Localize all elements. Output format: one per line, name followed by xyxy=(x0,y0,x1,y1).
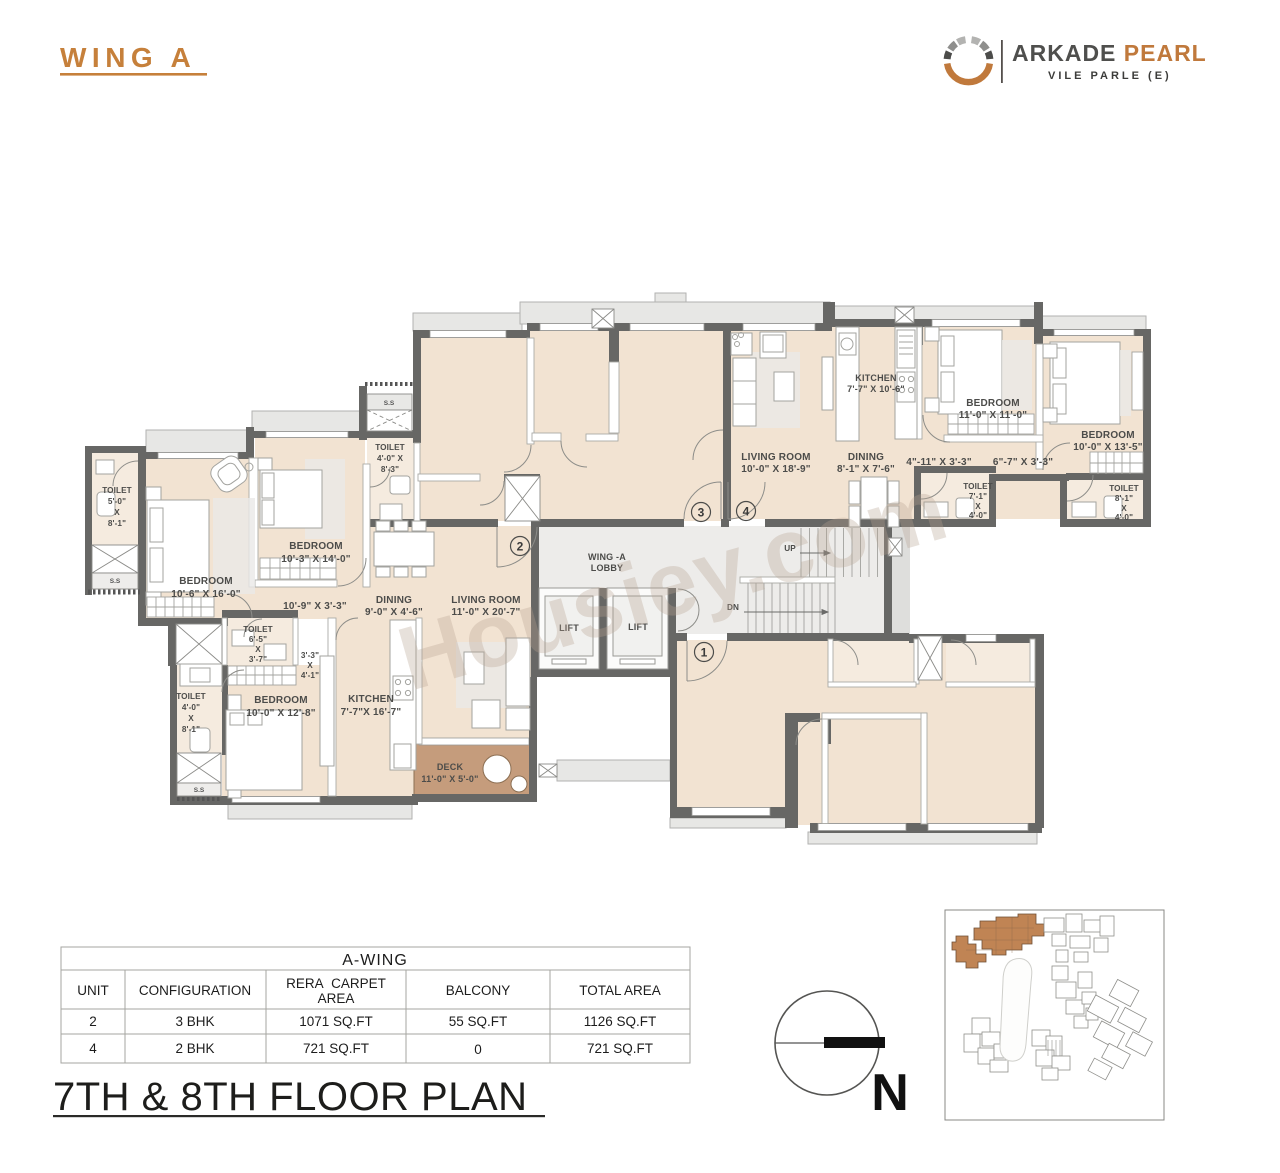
svg-text:BALCONY: BALCONY xyxy=(446,983,511,998)
svg-text:7TH & 8TH FLOOR PLAN: 7TH & 8TH FLOOR PLAN xyxy=(53,1075,528,1119)
svg-text:1071 SQ.FT: 1071 SQ.FT xyxy=(299,1014,373,1029)
svg-text:2: 2 xyxy=(517,540,524,554)
svg-text:2 BHK: 2 BHK xyxy=(175,1041,214,1056)
svg-text:721 SQ.FT: 721 SQ.FT xyxy=(303,1041,369,1056)
svg-text:AREA: AREA xyxy=(318,991,355,1006)
svg-text:3: 3 xyxy=(698,506,705,520)
svg-text:BEDROOM10'-0" X 13'-5": BEDROOM10'-0" X 13'-5" xyxy=(1073,430,1143,453)
svg-text:S.S: S.S xyxy=(194,787,205,794)
svg-text:CONFIGURATION: CONFIGURATION xyxy=(139,983,251,998)
svg-text:10'-9" X 3'-3": 10'-9" X 3'-3" xyxy=(283,601,347,612)
svg-text:1: 1 xyxy=(701,646,708,660)
svg-text:N: N xyxy=(871,1064,909,1122)
svg-text:VILE PARLE (E): VILE PARLE (E) xyxy=(1048,70,1172,82)
svg-text:LIVING ROOM10'-0" X 18'-9": LIVING ROOM10'-0" X 18'-9" xyxy=(741,452,811,475)
svg-text:0: 0 xyxy=(474,1042,482,1057)
svg-text:721 SQ.FT: 721 SQ.FT xyxy=(587,1041,653,1056)
svg-text:6"-7" X 3'-3": 6"-7" X 3'-3" xyxy=(993,457,1053,468)
svg-text:KITCHEN7'-7" X 10'-6": KITCHEN7'-7" X 10'-6" xyxy=(847,373,905,394)
svg-text:ARKADE PEARL: ARKADE PEARL xyxy=(1012,40,1207,66)
svg-text:S.S: S.S xyxy=(384,400,395,407)
svg-text:A-WING: A-WING xyxy=(342,952,408,969)
svg-text:UNIT: UNIT xyxy=(77,983,109,998)
svg-text:1126 SQ.FT: 1126 SQ.FT xyxy=(584,1014,657,1029)
svg-text:55 SQ.FT: 55 SQ.FT xyxy=(449,1014,508,1029)
svg-text:BEDROOM11'-0" X 11'-0": BEDROOM11'-0" X 11'-0" xyxy=(959,398,1027,421)
svg-text:S.S: S.S xyxy=(110,578,121,585)
svg-text:3 BHK: 3 BHK xyxy=(175,1014,214,1029)
svg-text:WING A: WING A xyxy=(60,42,196,73)
svg-text:TOTAL AREA: TOTAL AREA xyxy=(579,983,661,998)
svg-text:2: 2 xyxy=(89,1014,97,1029)
svg-text:RERA CARPET: RERA CARPET xyxy=(286,976,386,991)
svg-text:4: 4 xyxy=(89,1041,97,1056)
